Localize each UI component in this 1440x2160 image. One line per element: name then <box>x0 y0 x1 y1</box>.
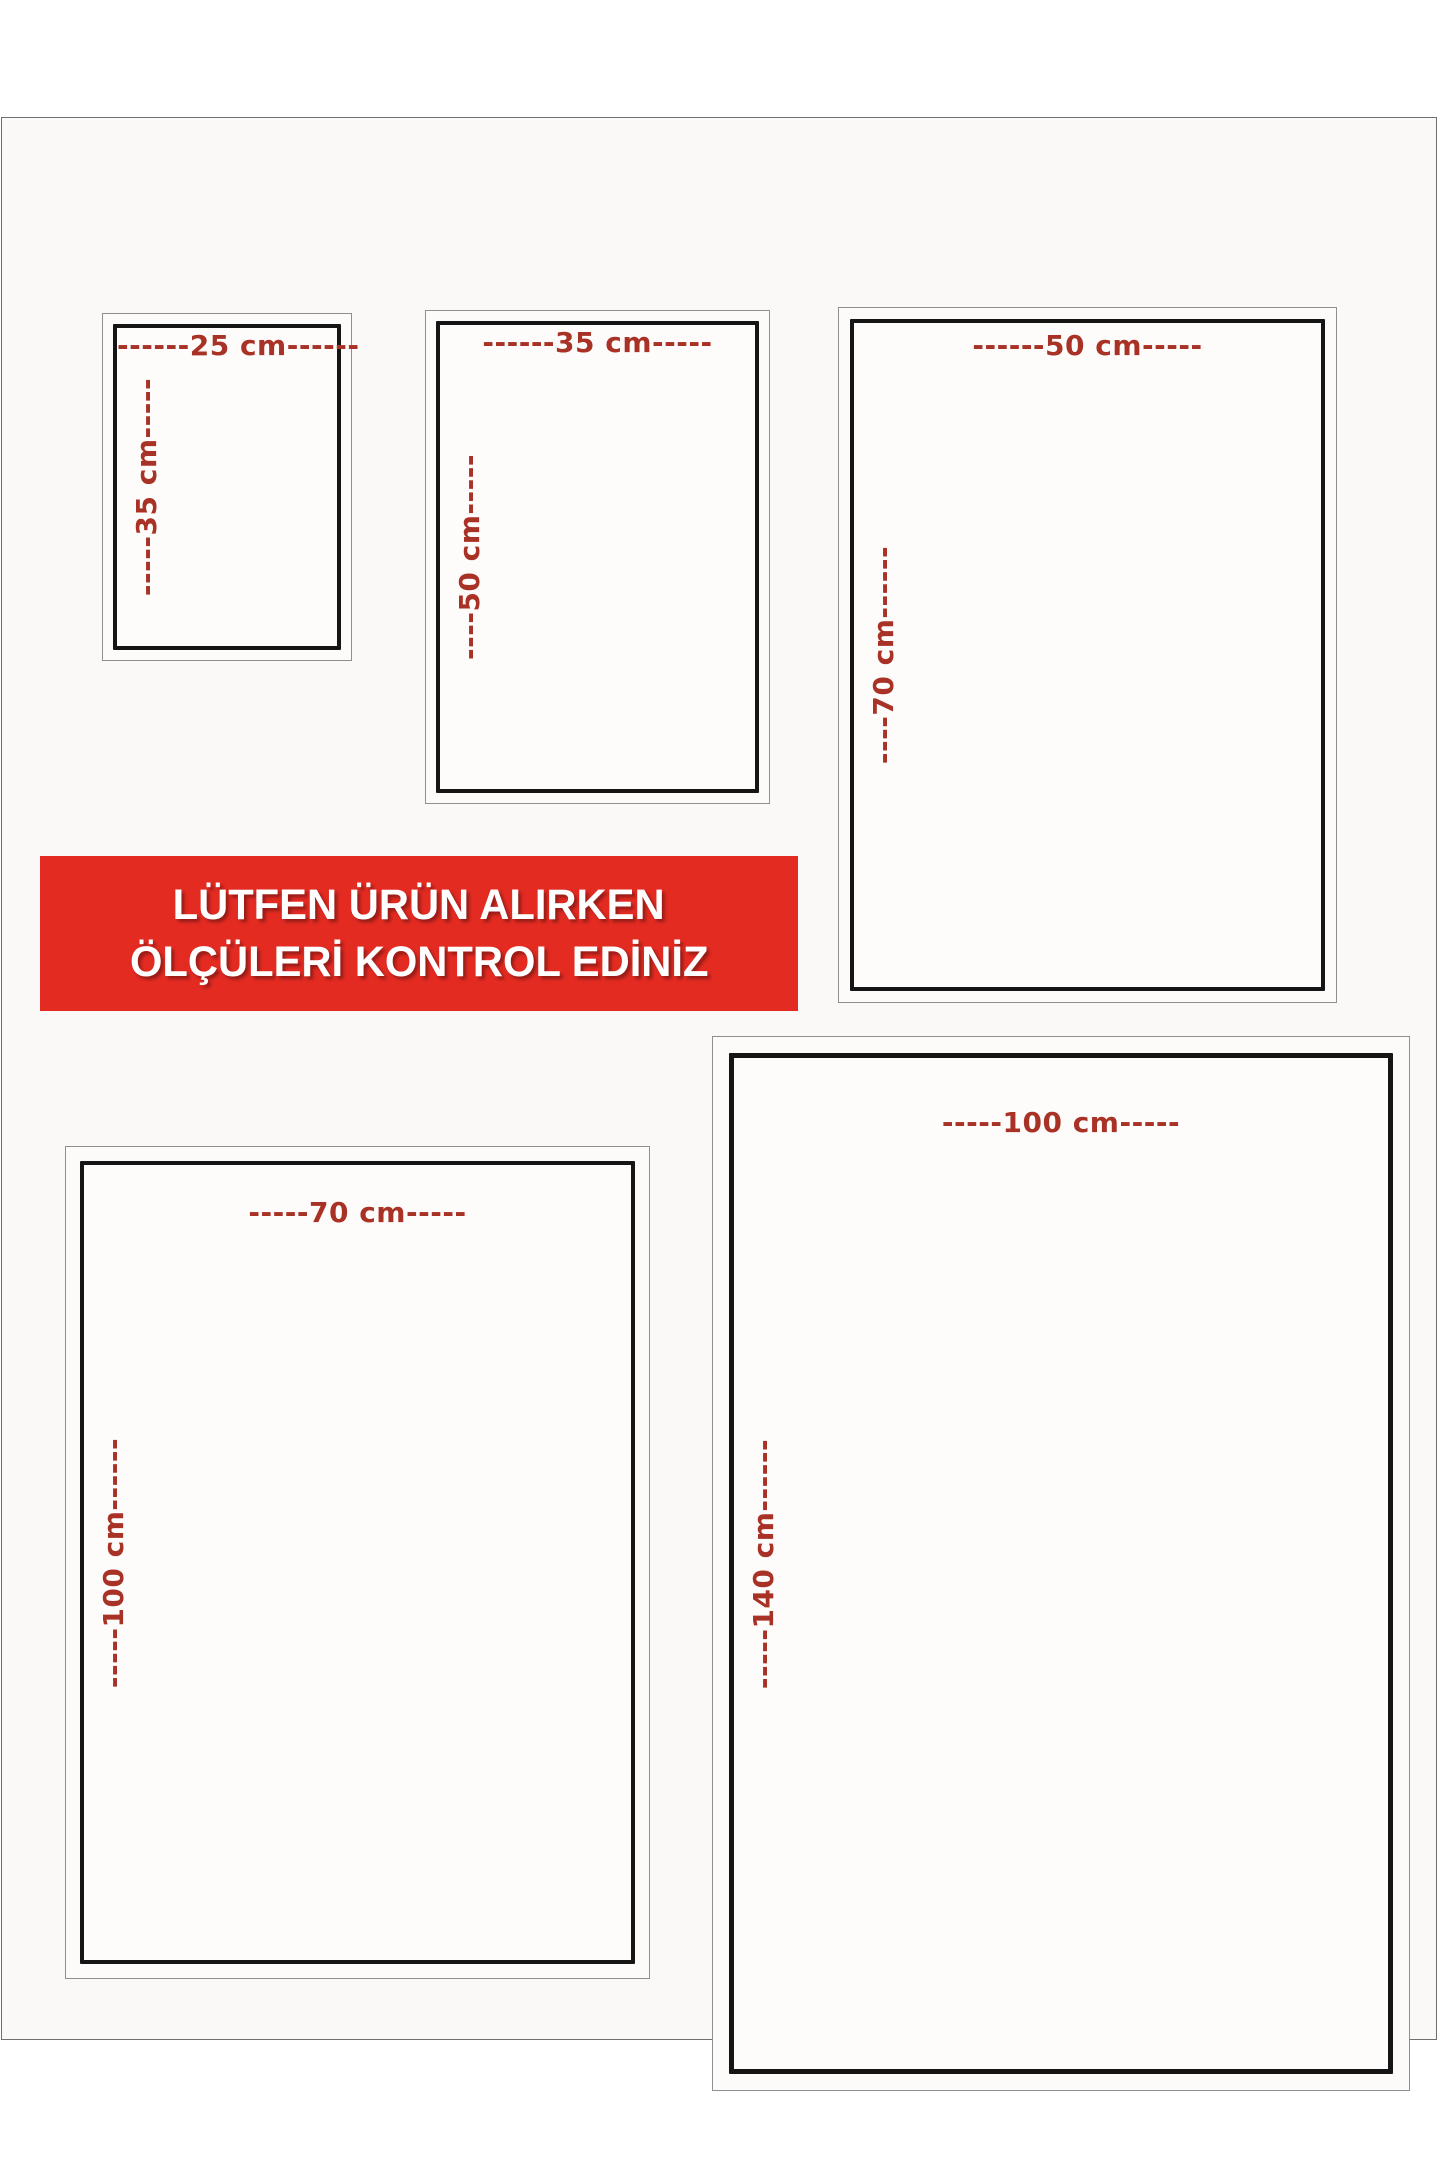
size-box-25x35-inner: ------25 cm------ -----35 cm----- <box>113 324 341 650</box>
height-dimension-wrap-50cm: ----50 cm----- <box>446 325 494 789</box>
size-box-50x70-inner: ------50 cm----- ----70 cm------ <box>850 319 1325 991</box>
height-dimension-wrap-35cm: -----35 cm----- <box>123 328 171 646</box>
width-dimension-label-100cm: -----100 cm----- <box>734 1105 1388 1141</box>
height-dimension-label-50cm: ----50 cm----- <box>452 454 488 660</box>
height-dimension-label-140cm: -----140 cm------ <box>746 1438 782 1688</box>
height-dimension-label-100cm: -----100 cm------ <box>96 1437 132 1687</box>
size-box-35x50-inner: ------35 cm----- ----50 cm----- <box>436 321 759 793</box>
height-dimension-label-70cm: ----70 cm------ <box>866 546 902 764</box>
height-dimension-wrap-100cm: -----100 cm------ <box>90 1165 138 1960</box>
size-box-70x100-inner: -----70 cm----- -----100 cm------ <box>80 1161 635 1964</box>
size-box-70x100: -----70 cm----- -----100 cm------ <box>65 1146 650 1979</box>
warning-banner-line2: ÖLÇÜLERİ KONTROL EDİNİZ <box>130 936 709 989</box>
width-dimension-label-70cm: -----70 cm----- <box>84 1195 631 1231</box>
diagram-canvas: ------25 cm------ -----35 cm----- ------… <box>1 117 1437 2040</box>
height-dimension-wrap-140cm: -----140 cm------ <box>740 1058 788 2069</box>
warning-banner-line1: LÜTFEN ÜRÜN ALIRKEN <box>173 879 665 932</box>
size-box-100x140: -----100 cm----- -----140 cm------ <box>712 1036 1410 2091</box>
size-box-100x140-inner: -----100 cm----- -----140 cm------ <box>729 1053 1393 2074</box>
size-box-35x50: ------35 cm----- ----50 cm----- <box>425 310 770 804</box>
height-dimension-wrap-70cm: ----70 cm------ <box>860 323 908 987</box>
width-dimension-label-25cm: ------25 cm------ <box>117 328 337 364</box>
warning-banner: LÜTFEN ÜRÜN ALIRKEN ÖLÇÜLERİ KONTROL EDİ… <box>40 856 798 1011</box>
width-dimension-label-50cm: ------50 cm----- <box>854 328 1321 364</box>
width-dimension-label-35cm: ------35 cm----- <box>440 325 755 361</box>
size-box-25x35: ------25 cm------ -----35 cm----- <box>102 313 352 661</box>
size-box-50x70: ------50 cm----- ----70 cm------ <box>838 307 1337 1003</box>
height-dimension-label-35cm: -----35 cm----- <box>129 378 165 596</box>
